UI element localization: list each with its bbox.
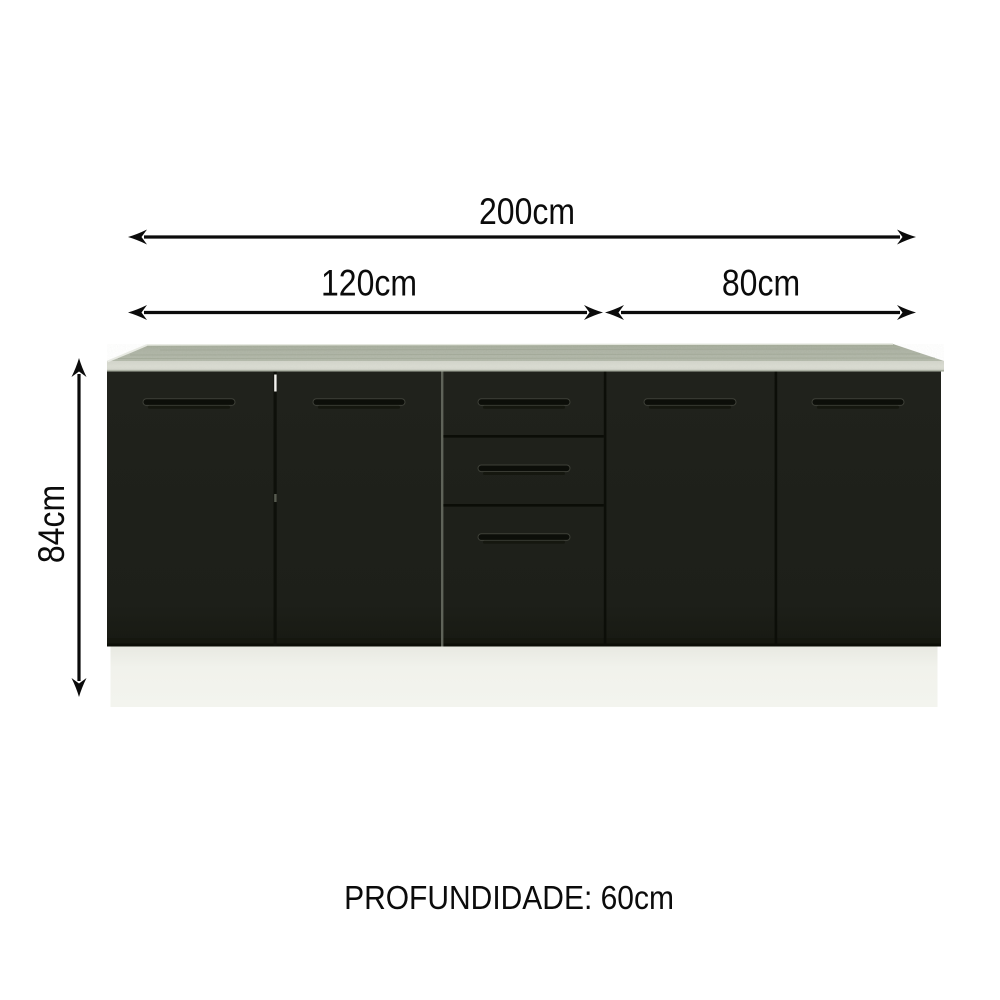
svg-text:200cm: 200cm (479, 192, 575, 233)
svg-text:PROFUNDIDADE: 60cm: PROFUNDIDADE: 60cm (344, 879, 674, 917)
svg-text:80cm: 80cm (722, 263, 800, 304)
svg-text:120cm: 120cm (321, 263, 417, 304)
svg-text:84cm: 84cm (32, 485, 73, 563)
